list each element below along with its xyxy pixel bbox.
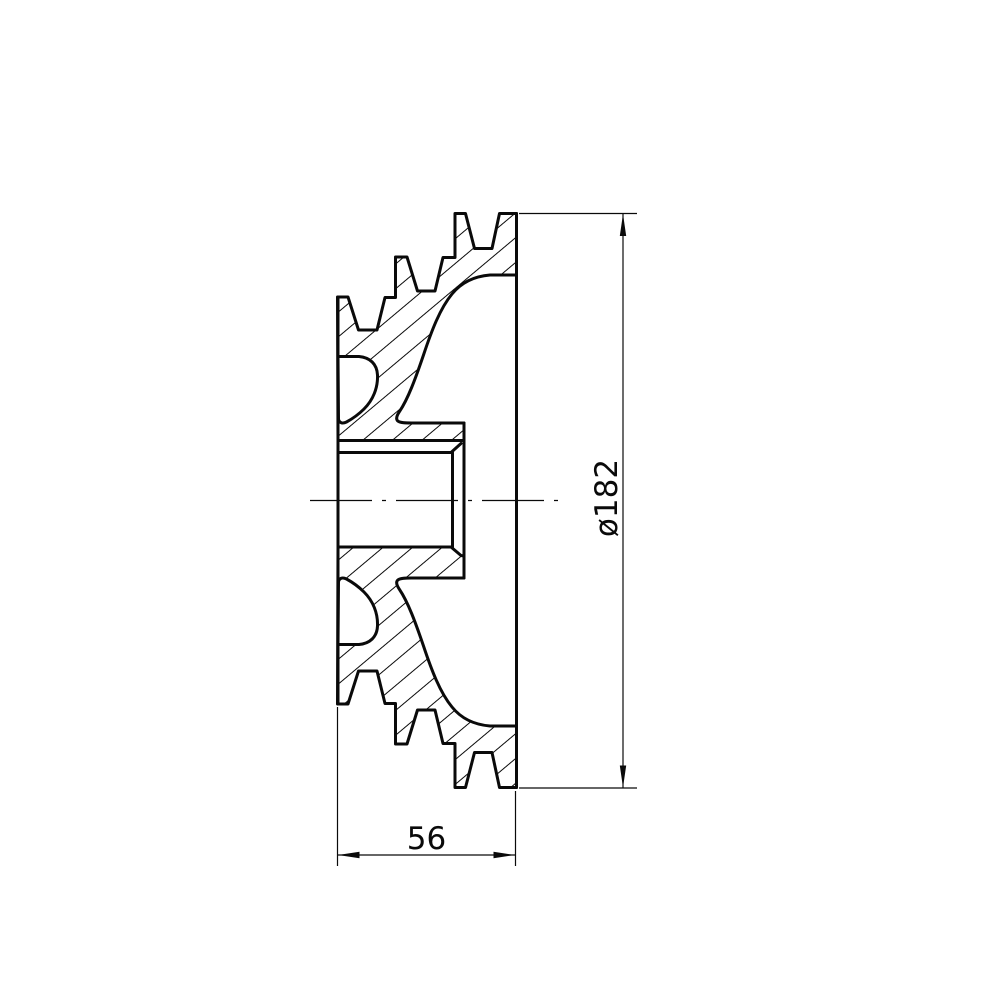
arrowhead-right-icon	[494, 852, 516, 858]
technical-drawing: ø182 56	[0, 0, 1000, 1000]
width-dimension-label: 56	[407, 821, 446, 857]
diameter-dimension-label: ø182	[589, 459, 625, 537]
arrowhead-left-icon	[338, 852, 360, 858]
arrowhead-up-icon	[620, 214, 626, 236]
drawing-canvas: ø182 56	[0, 0, 1000, 1000]
pulley-section-lower-half	[338, 547, 517, 788]
bore-top-line	[338, 444, 461, 453]
arrowhead-down-icon	[620, 766, 626, 788]
